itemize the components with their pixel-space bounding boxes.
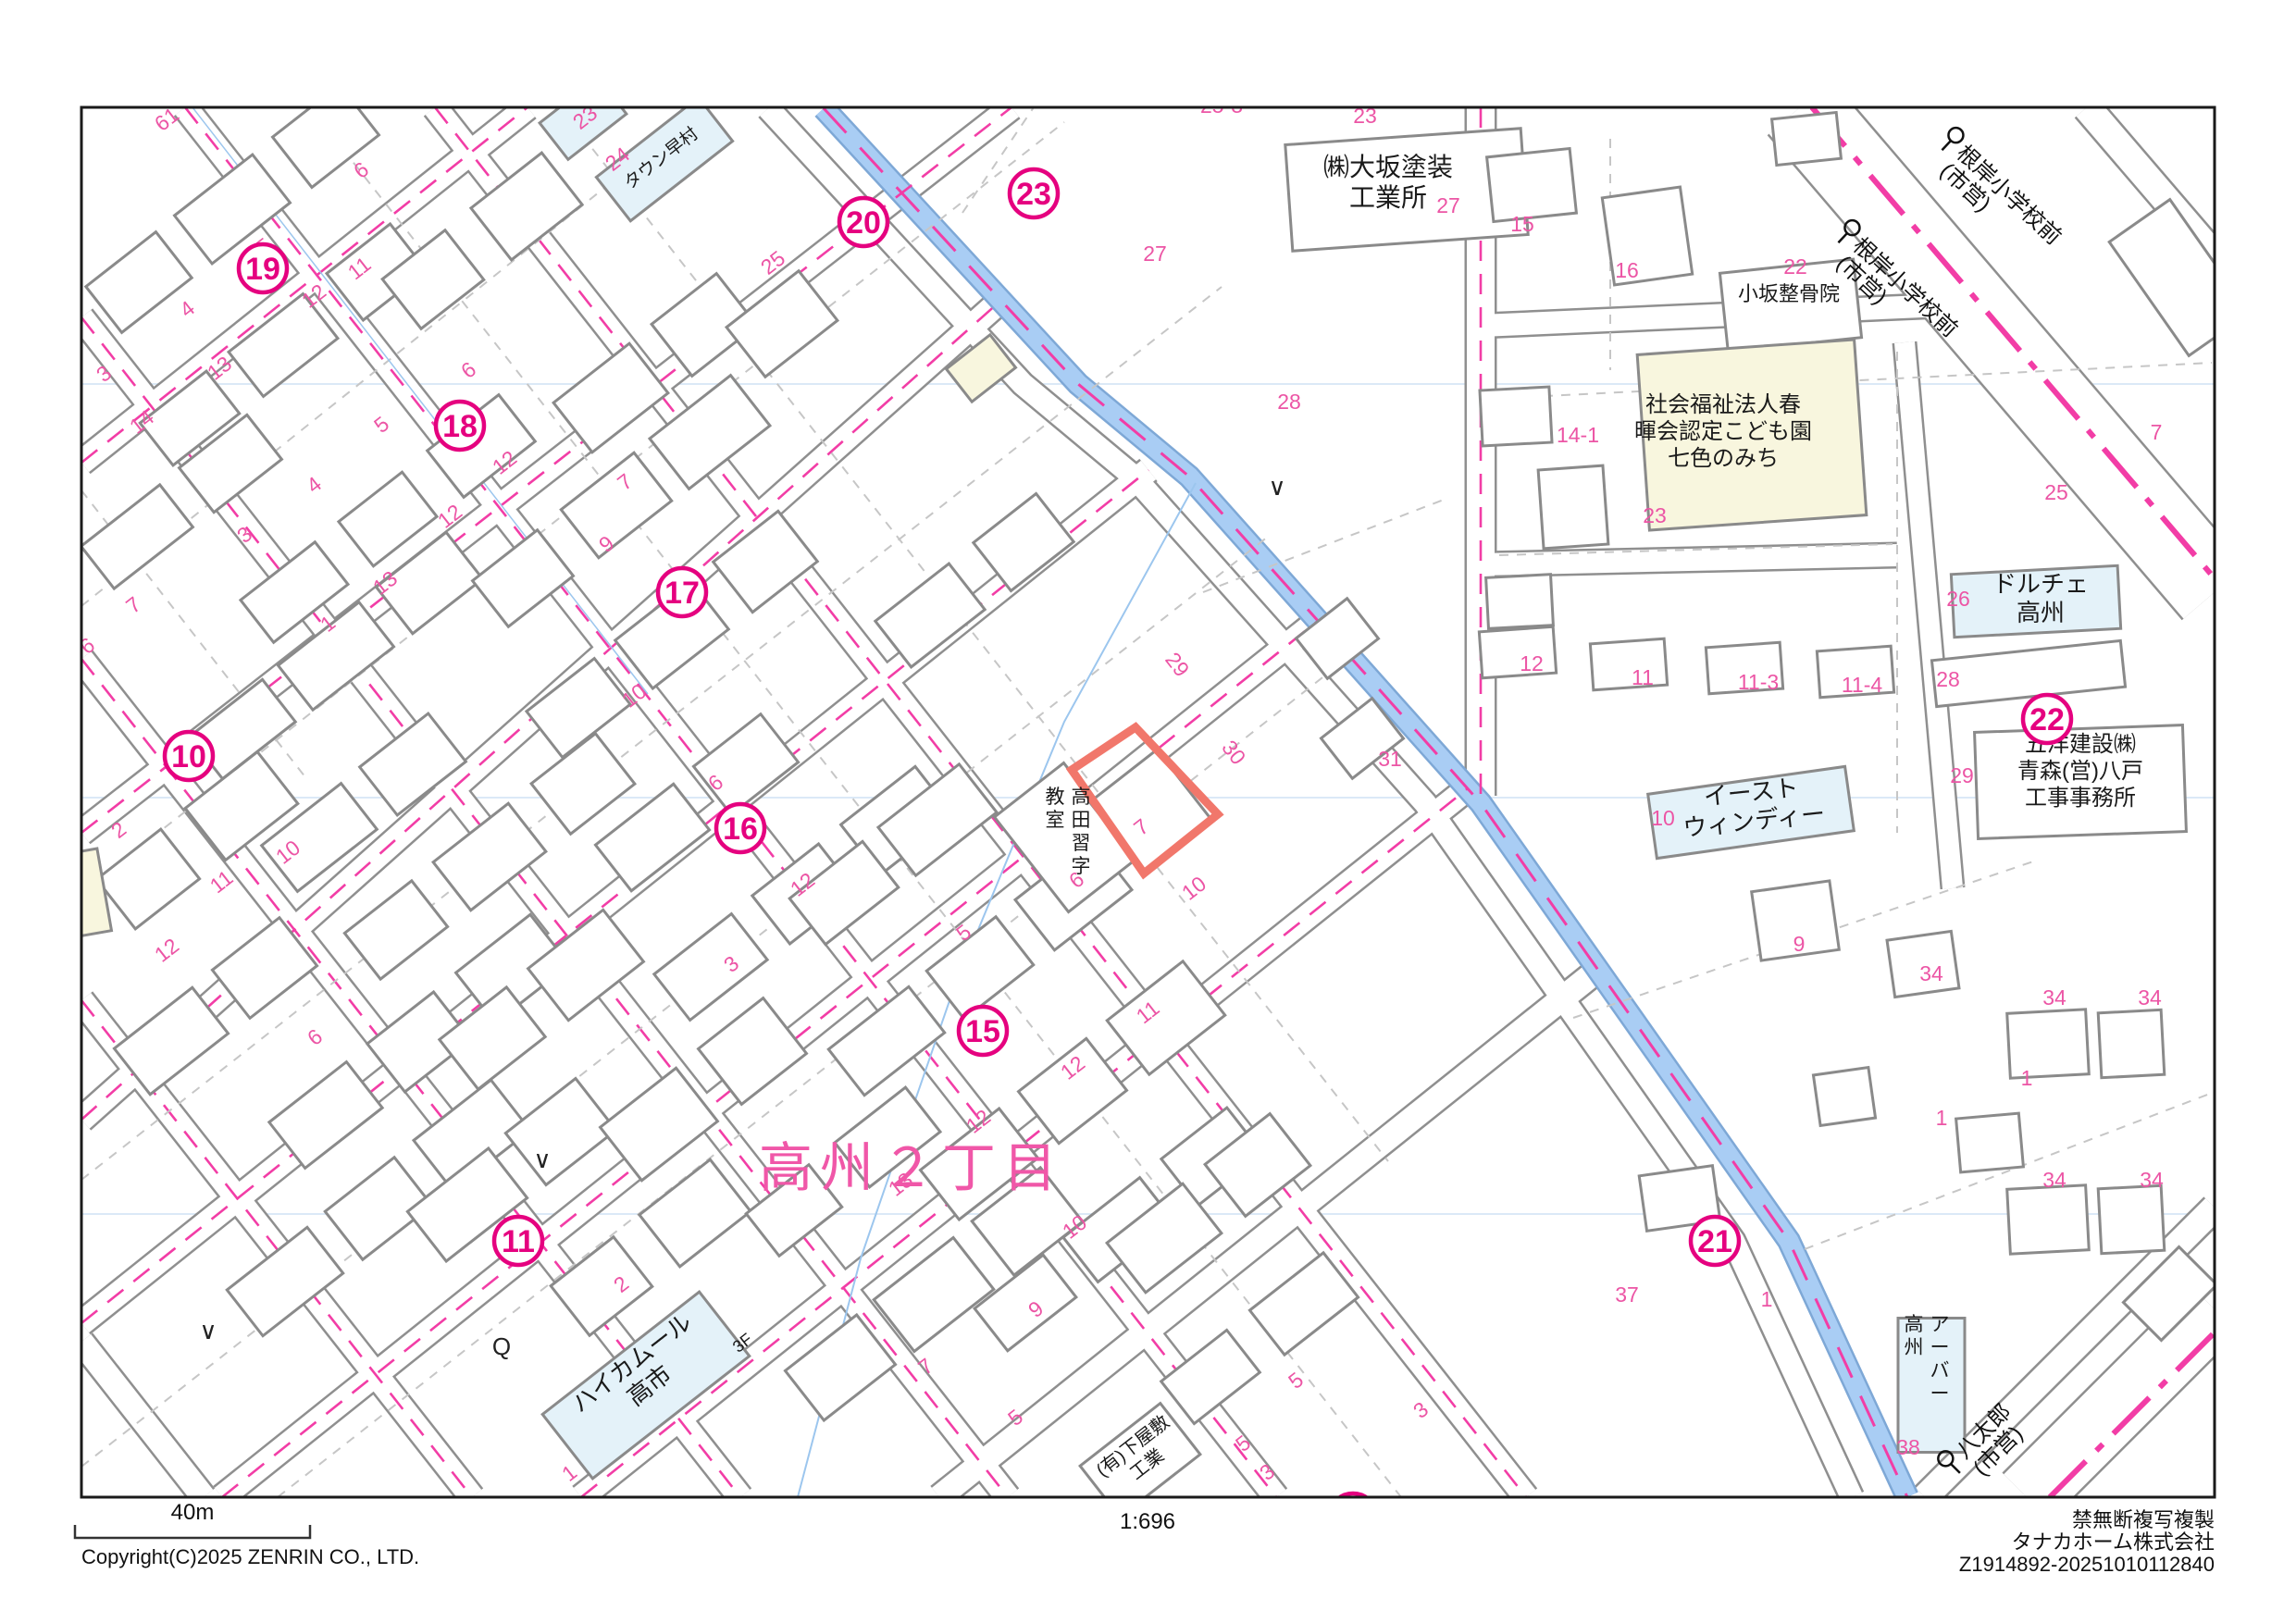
building (1161, 1330, 1260, 1423)
building (229, 294, 338, 397)
building (693, 714, 798, 815)
building (974, 494, 1074, 591)
svg-text:18: 18 (442, 409, 478, 444)
svg-text:七色のみち: 七色のみち (1668, 446, 1779, 471)
block-number-16: 16 (716, 804, 764, 852)
svg-text:11: 11 (502, 1224, 535, 1259)
svg-text:22: 22 (2029, 702, 2065, 737)
svg-text:工業所: 工業所 (1349, 183, 1427, 212)
map-symbol: ∨ (199, 1317, 217, 1344)
building (505, 1078, 615, 1184)
building (59, 849, 112, 937)
building (440, 987, 545, 1089)
lot-number: 9 (1793, 932, 1806, 956)
lot-number: 34 (2042, 1168, 2066, 1192)
map-page: 6123242565111243131465124312137167910210… (0, 0, 2296, 1623)
lot-number: 22 (1783, 254, 1807, 279)
building (473, 530, 574, 626)
lot-number: 28 (1936, 667, 1960, 691)
lot-number: 27 (1436, 193, 1460, 217)
lot-number: 6 (303, 1024, 327, 1050)
lot-number: 6 (456, 357, 480, 383)
lot-number: 31 (1378, 747, 1402, 771)
building (531, 734, 635, 835)
lot-number: 3 (1409, 1397, 1433, 1423)
building (1956, 1113, 2024, 1172)
block-number-18: 18 (436, 402, 484, 450)
lot-number: 15 (1510, 212, 1534, 236)
lot-number: 1 (2021, 1066, 2033, 1090)
lot-number: 27 (1143, 242, 1167, 266)
svg-text:教: 教 (1046, 787, 1065, 808)
svg-text:州: 州 (1905, 1337, 1924, 1358)
svg-text:工事事務所: 工事事務所 (2025, 786, 2136, 811)
credit-line-2: タナカホーム株式会社 (2012, 1530, 2215, 1554)
building (1487, 148, 1577, 221)
credit-line-3: Z1914892-20251010112840 (1959, 1553, 2215, 1576)
svg-text:小坂整骨院: 小坂整骨院 (1738, 282, 1840, 305)
credit-line-1: 禁無断複写複製 (2072, 1508, 2215, 1531)
lot-number: 12 (1520, 651, 1544, 675)
block-number-22: 22 (2023, 695, 2071, 743)
block-number-19: 19 (239, 244, 287, 292)
building (639, 1159, 751, 1267)
lot-number: 34 (2042, 985, 2066, 1010)
lot-number: 1 (1936, 1106, 1948, 1130)
block-number-20: 20 (839, 198, 887, 246)
lot-number: 30 (1217, 736, 1250, 769)
lot-number: 4 (302, 471, 326, 497)
lot-number: 34 (2140, 1168, 2164, 1192)
district-label: 高州２丁目 (759, 1138, 1064, 1198)
block-number-15: 15 (959, 1007, 1007, 1055)
lot-number: 25-3 (1200, 93, 1243, 118)
svg-text:暉会認定こども園: 暉会認定こども園 (1634, 419, 1812, 444)
svg-text:ドルチェ: ドルチェ (1992, 570, 2089, 598)
lot-number: 12 (150, 934, 183, 967)
copyright-text: Copyright(C)2025 ZENRIN CO., LTD. (81, 1545, 419, 1568)
building (654, 914, 767, 1021)
building (344, 881, 447, 979)
lot-number: 5 (369, 412, 393, 438)
svg-text:14: 14 (1335, 1501, 1371, 1536)
svg-text:社会福祉法人春: 社会福祉法人春 (1645, 392, 1801, 417)
building (875, 564, 985, 667)
map-symbol: ∨ (533, 1146, 551, 1173)
lot-number: 7 (121, 592, 145, 618)
lot-number: 11-4 (1842, 673, 1883, 697)
building (2007, 1185, 2090, 1254)
lot-number: 5 (1284, 1368, 1308, 1394)
building (1486, 575, 1554, 629)
lot-number: 1 (1761, 1287, 1773, 1311)
svg-text:ー: ー (1930, 1383, 1950, 1405)
svg-text:室: 室 (1046, 810, 1065, 831)
building (2098, 1185, 2165, 1253)
lot-number: 14-1 (1557, 423, 1599, 447)
building (1813, 1068, 1875, 1126)
lot-number: 34 (1919, 961, 1943, 985)
svg-text:田: 田 (1072, 810, 1091, 831)
svg-text:㈱大坂塗装: ㈱大坂塗装 (1323, 153, 1453, 181)
lot-number: 11-3 (1738, 670, 1779, 694)
building (1480, 387, 1552, 446)
map-canvas: 6123242565111243131465124312137167910210… (0, 0, 2296, 1623)
block-number-23: 23 (1010, 169, 1058, 217)
svg-text:青森(営)八戸: 青森(営)八戸 (2017, 759, 2143, 784)
svg-text:17: 17 (664, 576, 700, 611)
lot-number: 16 (1615, 258, 1639, 282)
lot-number: 11 (1632, 665, 1654, 689)
svg-text:16: 16 (723, 811, 758, 847)
building (2109, 200, 2250, 356)
lot-number: 28 (1277, 390, 1301, 414)
map-symbol: ∨ (1268, 473, 1285, 501)
svg-text:15: 15 (965, 1014, 1000, 1049)
block-number-11: 11 (494, 1217, 542, 1265)
svg-text:高: 高 (1905, 1314, 1924, 1335)
lot-number: 37 (1615, 1282, 1639, 1307)
map-symbol: Q (492, 1332, 511, 1360)
block-number-10: 10 (165, 732, 213, 780)
building (1931, 640, 2125, 706)
building (96, 829, 199, 929)
building (1538, 465, 1608, 549)
scale-label: 40m (171, 1500, 215, 1525)
place-label-goyo-kensetsu-office: 五洋建設㈱青森(営)八戸工事事務所 (2017, 732, 2143, 811)
svg-text:バ: バ (1930, 1360, 1950, 1381)
lot-number: 38 (1896, 1435, 1920, 1459)
scale-bar (75, 1525, 310, 1538)
building (726, 271, 838, 378)
building (81, 485, 193, 588)
lot-number: 6 (349, 157, 373, 183)
svg-text:10: 10 (171, 739, 206, 774)
lot-number: 10 (1651, 806, 1675, 830)
building (1479, 626, 1556, 677)
map-ratio: 1:696 (1120, 1509, 1175, 1534)
lot-number: 23 (1643, 503, 1667, 527)
block-number-14: 14 (1329, 1493, 1377, 1542)
svg-text:習: 習 (1072, 833, 1091, 854)
building (86, 232, 192, 333)
svg-text:高州: 高州 (2017, 599, 2065, 626)
building (1590, 638, 1667, 689)
lot-number: 7 (2151, 420, 2163, 444)
svg-text:高: 高 (1072, 787, 1091, 808)
building (561, 452, 671, 558)
block-number-17: 17 (658, 568, 706, 616)
svg-text:20: 20 (846, 205, 881, 241)
lot-number: 26 (1946, 587, 1970, 611)
building (2098, 1010, 2165, 1077)
block-number-21: 21 (1691, 1217, 1739, 1265)
svg-text:21: 21 (1697, 1224, 1732, 1259)
lot-number: 25 (2044, 480, 2068, 504)
lot-number: 29 (1950, 763, 1974, 787)
lot-number: 34 (2138, 985, 2162, 1010)
lot-number: 2 (106, 817, 130, 843)
svg-text:ー: ー (1930, 1337, 1950, 1358)
building (551, 1237, 652, 1336)
svg-text:ア: ア (1930, 1314, 1950, 1335)
svg-text:19: 19 (245, 252, 280, 287)
building (2007, 1010, 2090, 1078)
svg-text:字: 字 (1072, 856, 1091, 877)
lot-number: 4 (175, 295, 199, 321)
svg-text:23: 23 (1016, 177, 1051, 212)
place-label-kosaka-seikotsuin: 小坂整骨院 (1738, 282, 1840, 305)
building (1772, 112, 1842, 165)
lot-number: 29 (1160, 648, 1194, 681)
